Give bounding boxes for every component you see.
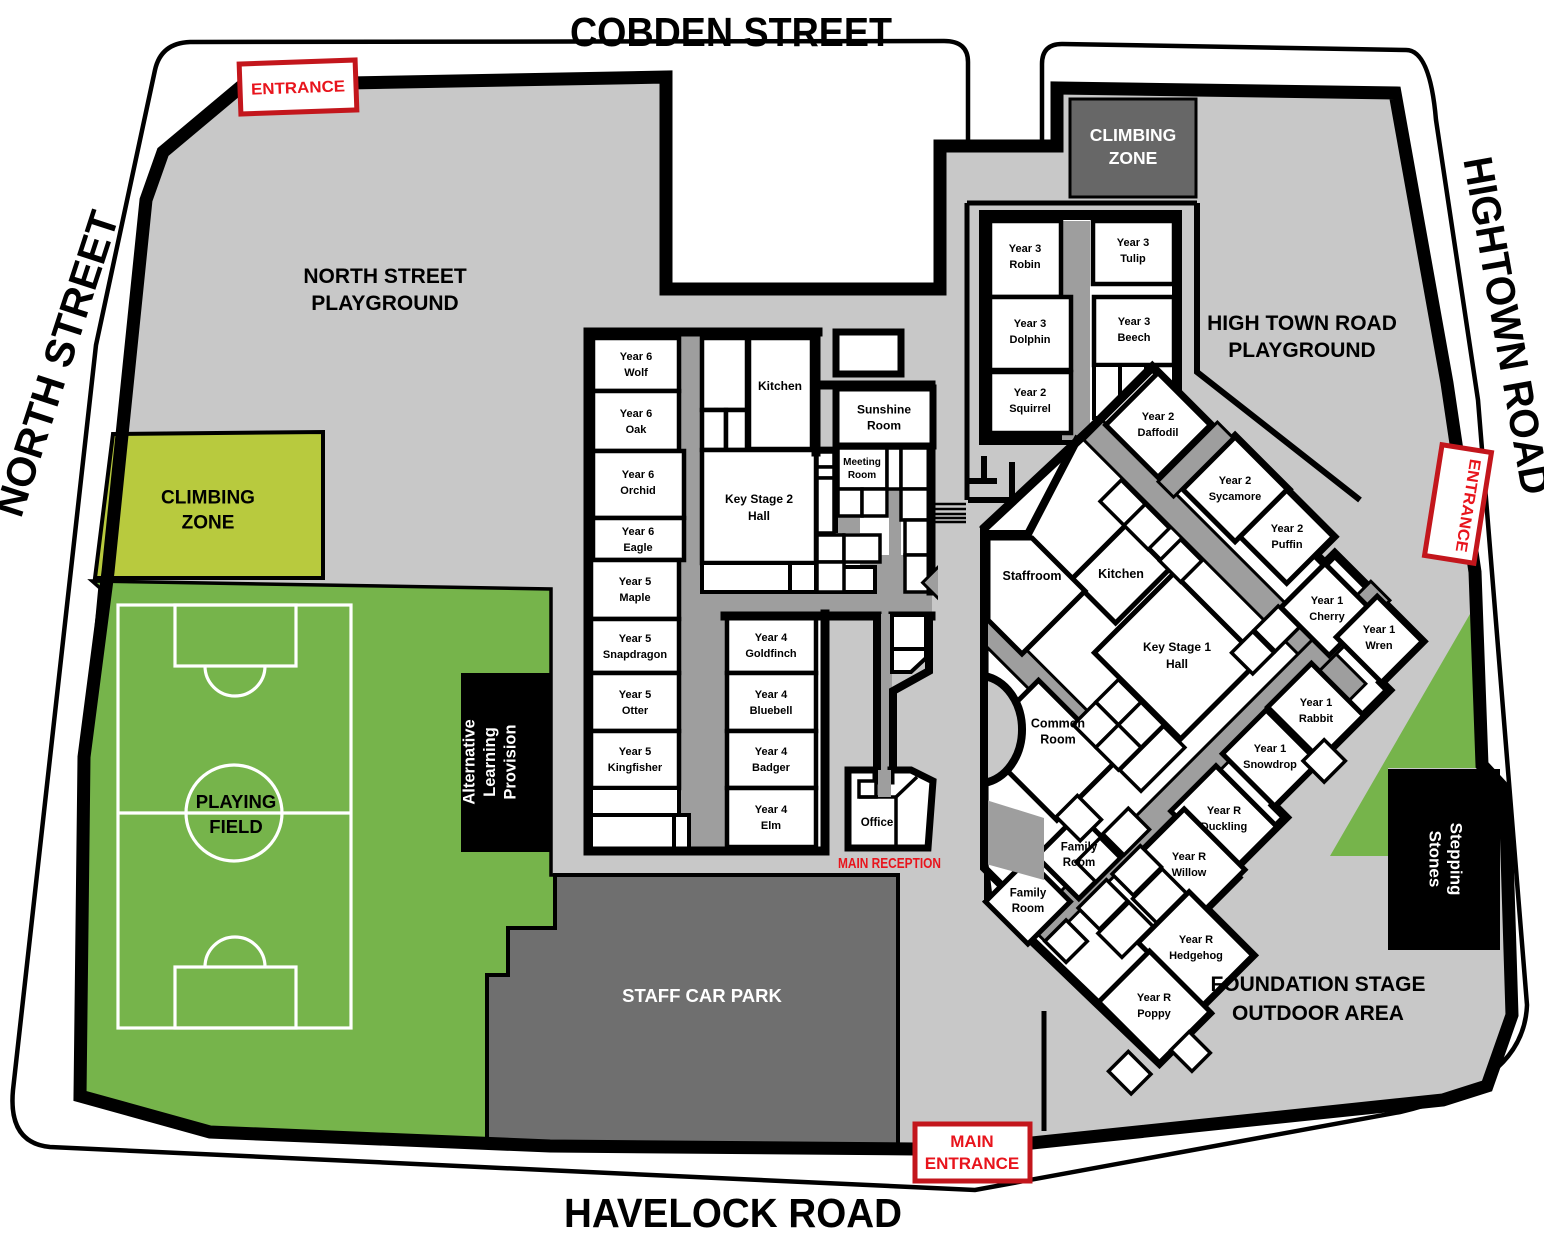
svg-text:Year 2: Year 2 bbox=[1219, 475, 1251, 487]
svg-text:Room: Room bbox=[848, 470, 876, 481]
svg-text:PLAYGROUND: PLAYGROUND bbox=[311, 292, 458, 315]
svg-text:Year 1: Year 1 bbox=[1254, 743, 1286, 755]
svg-text:Tulip: Tulip bbox=[1120, 253, 1146, 265]
svg-text:Alternative: Alternative bbox=[460, 719, 478, 804]
svg-text:Key Stage 1: Key Stage 1 bbox=[1143, 640, 1211, 654]
svg-text:Year 6: Year 6 bbox=[620, 351, 652, 363]
svg-text:Year 2: Year 2 bbox=[1014, 387, 1046, 399]
svg-text:MAIN RECEPTION: MAIN RECEPTION bbox=[838, 855, 941, 872]
svg-text:Year 5: Year 5 bbox=[619, 633, 651, 645]
svg-text:Squirrel: Squirrel bbox=[1009, 403, 1051, 415]
svg-text:Orchid: Orchid bbox=[620, 485, 655, 497]
svg-text:Year 4: Year 4 bbox=[755, 689, 788, 701]
svg-text:PLAYGROUND: PLAYGROUND bbox=[1228, 339, 1375, 362]
svg-text:Kitchen: Kitchen bbox=[758, 379, 802, 393]
svg-text:Wolf: Wolf bbox=[624, 367, 648, 379]
svg-text:Sunshine: Sunshine bbox=[857, 402, 911, 416]
svg-text:Office: Office bbox=[861, 817, 894, 829]
svg-text:Sycamore: Sycamore bbox=[1209, 491, 1262, 503]
svg-text:Room: Room bbox=[867, 418, 901, 432]
svg-text:Year 5: Year 5 bbox=[619, 576, 651, 588]
svg-text:COBDEN STREET: COBDEN STREET bbox=[570, 9, 892, 55]
svg-text:Wren: Wren bbox=[1365, 640, 1393, 652]
svg-text:Year 4: Year 4 bbox=[755, 746, 788, 758]
svg-text:Staffroom: Staffroom bbox=[1002, 569, 1061, 583]
svg-text:Year 6: Year 6 bbox=[622, 469, 654, 481]
svg-text:Kingfisher: Kingfisher bbox=[608, 762, 663, 774]
svg-text:Snowdrop: Snowdrop bbox=[1243, 759, 1297, 771]
svg-text:MAIN: MAIN bbox=[950, 1132, 993, 1151]
svg-text:Daffodil: Daffodil bbox=[1138, 427, 1179, 439]
svg-text:Poppy: Poppy bbox=[1137, 1008, 1171, 1020]
svg-text:Year 1: Year 1 bbox=[1300, 697, 1332, 709]
svg-text:Hall: Hall bbox=[748, 509, 770, 523]
svg-text:Common: Common bbox=[1031, 717, 1085, 731]
svg-text:Duckling: Duckling bbox=[1201, 821, 1247, 833]
svg-text:HAVELOCK ROAD: HAVELOCK ROAD bbox=[564, 1190, 902, 1233]
svg-text:Year R: Year R bbox=[1207, 805, 1241, 817]
svg-text:ZONE: ZONE bbox=[182, 512, 235, 533]
svg-text:Year 1: Year 1 bbox=[1311, 595, 1343, 607]
svg-text:Hall: Hall bbox=[1166, 657, 1188, 671]
svg-text:Year 5: Year 5 bbox=[619, 689, 651, 701]
svg-text:Year 4: Year 4 bbox=[755, 804, 788, 816]
svg-text:Family: Family bbox=[1061, 841, 1098, 853]
svg-text:Year R: Year R bbox=[1179, 934, 1213, 946]
svg-text:Year 3: Year 3 bbox=[1117, 237, 1149, 249]
svg-text:Hedgehog: Hedgehog bbox=[1169, 950, 1223, 962]
svg-text:Meeting: Meeting bbox=[843, 457, 881, 468]
svg-text:Year 6: Year 6 bbox=[622, 526, 654, 538]
svg-text:Eagle: Eagle bbox=[623, 542, 652, 554]
svg-text:Robin: Robin bbox=[1009, 259, 1040, 271]
svg-text:Year 1: Year 1 bbox=[1363, 624, 1395, 636]
svg-text:Room: Room bbox=[1040, 733, 1075, 747]
svg-text:Year R: Year R bbox=[1137, 992, 1171, 1004]
svg-text:Maple: Maple bbox=[619, 592, 650, 604]
svg-text:Oak: Oak bbox=[626, 424, 648, 436]
svg-text:Year 3: Year 3 bbox=[1009, 243, 1041, 255]
svg-text:ZONE: ZONE bbox=[1109, 148, 1158, 168]
svg-text:Year 4: Year 4 bbox=[755, 632, 788, 644]
svg-text:ENTRANCE: ENTRANCE bbox=[251, 78, 346, 98]
svg-text:Otter: Otter bbox=[622, 705, 649, 717]
svg-text:HIGH TOWN ROAD: HIGH TOWN ROAD bbox=[1207, 312, 1397, 335]
svg-text:Badger: Badger bbox=[752, 762, 791, 774]
svg-text:CLIMBING: CLIMBING bbox=[161, 487, 255, 508]
svg-text:FOUNDATION STAGE: FOUNDATION STAGE bbox=[1210, 973, 1425, 996]
svg-text:Stones: Stones bbox=[1425, 831, 1444, 888]
svg-text:Goldfinch: Goldfinch bbox=[745, 648, 797, 660]
svg-text:Dolphin: Dolphin bbox=[1010, 334, 1051, 346]
svg-text:Year 2: Year 2 bbox=[1271, 523, 1303, 535]
svg-text:OUTDOOR AREA: OUTDOOR AREA bbox=[1232, 1002, 1404, 1025]
svg-text:Provision: Provision bbox=[501, 724, 519, 799]
svg-text:Snapdragon: Snapdragon bbox=[603, 649, 667, 661]
svg-text:Willow: Willow bbox=[1172, 867, 1207, 879]
svg-text:Elm: Elm bbox=[761, 820, 781, 832]
svg-text:Rabbit: Rabbit bbox=[1299, 713, 1334, 725]
svg-text:Room: Room bbox=[1063, 857, 1096, 869]
svg-text:NORTH STREET: NORTH STREET bbox=[303, 265, 467, 288]
svg-text:CLIMBING: CLIMBING bbox=[1090, 125, 1177, 145]
svg-text:ENTRANCE: ENTRANCE bbox=[925, 1154, 1019, 1173]
svg-text:Stepping: Stepping bbox=[1446, 823, 1465, 896]
svg-text:Cherry: Cherry bbox=[1309, 611, 1345, 623]
svg-text:Year R: Year R bbox=[1172, 851, 1206, 863]
svg-text:Kitchen: Kitchen bbox=[1098, 567, 1144, 581]
svg-text:Beech: Beech bbox=[1117, 332, 1150, 344]
svg-text:STAFF CAR PARK: STAFF CAR PARK bbox=[622, 985, 782, 1006]
svg-text:Year 5: Year 5 bbox=[619, 746, 651, 758]
svg-text:Bluebell: Bluebell bbox=[750, 705, 793, 717]
svg-text:Learning: Learning bbox=[481, 727, 499, 797]
svg-text:Family: Family bbox=[1010, 887, 1047, 899]
svg-text:Room: Room bbox=[1012, 903, 1045, 915]
svg-text:PLAYING: PLAYING bbox=[196, 791, 277, 812]
svg-text:FIELD: FIELD bbox=[209, 816, 262, 837]
svg-text:Year 2: Year 2 bbox=[1142, 411, 1174, 423]
svg-text:Year 6: Year 6 bbox=[620, 408, 652, 420]
svg-text:Year 3: Year 3 bbox=[1014, 318, 1046, 330]
svg-text:Key Stage 2: Key Stage 2 bbox=[725, 492, 793, 506]
svg-text:Year 3: Year 3 bbox=[1118, 316, 1150, 328]
svg-text:Puffin: Puffin bbox=[1271, 539, 1302, 551]
